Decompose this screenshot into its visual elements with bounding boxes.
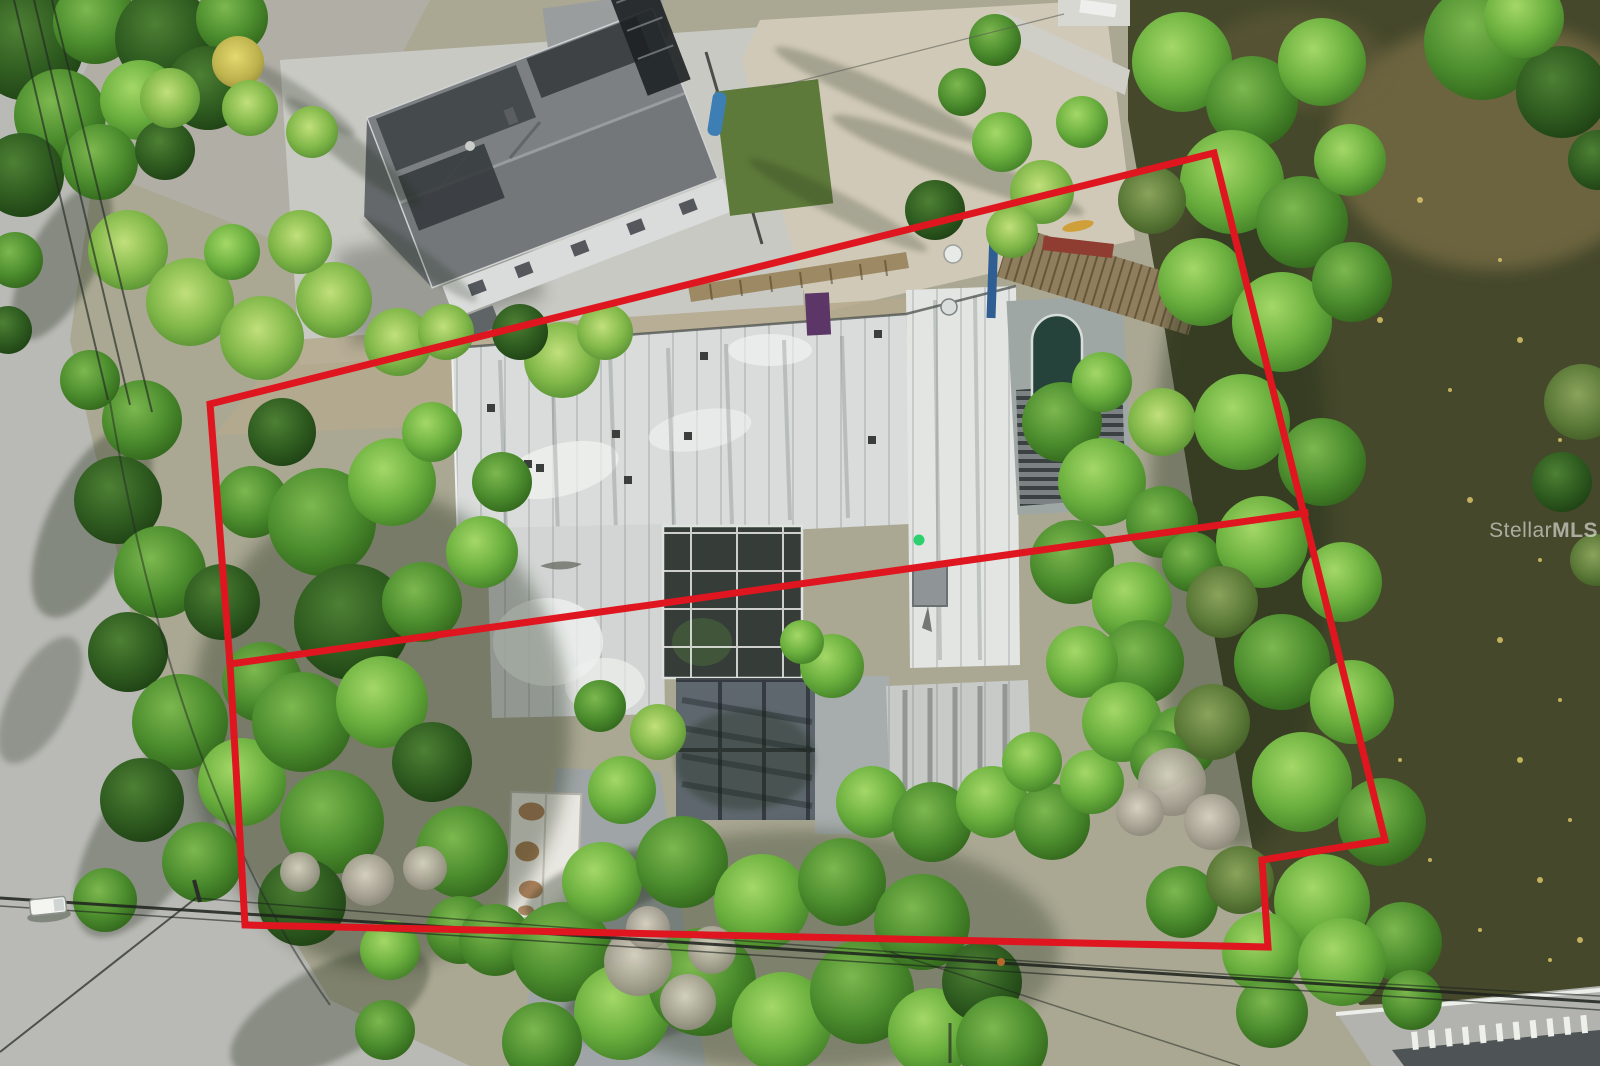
scene-shape xyxy=(612,430,620,438)
tree-canopy-blob xyxy=(938,68,986,116)
tree-canopy-blob xyxy=(1278,18,1366,106)
tree-canopy-blob xyxy=(296,262,372,338)
tree-canopy-blob xyxy=(574,680,626,732)
scene-shape xyxy=(700,352,708,360)
watermark-brand-first: Stellar xyxy=(1489,519,1552,542)
tree-canopy-blob xyxy=(392,722,472,802)
tree-canopy-blob xyxy=(636,816,728,908)
tree-canopy-blob xyxy=(1186,566,1258,638)
tree-canopy-blob xyxy=(355,1000,415,1060)
tree-canopy-blob xyxy=(986,206,1038,258)
white-dome-tank xyxy=(944,245,962,263)
tree-canopy-blob xyxy=(204,224,260,280)
water-debris-speck xyxy=(1428,858,1432,862)
tree-canopy-blob xyxy=(1314,124,1386,196)
dead-tree-blob xyxy=(660,974,716,1030)
tree-canopy-blob xyxy=(1382,970,1442,1030)
tree-canopy-blob xyxy=(1532,452,1592,512)
cable-transformer-dot xyxy=(997,958,1005,966)
tree-canopy-blob xyxy=(60,350,120,410)
roof-right-tall-seams xyxy=(906,286,1020,668)
aerial-photo: StellarMLS xyxy=(0,0,1600,1066)
water-debris-speck xyxy=(1398,758,1402,762)
dead-tree-blob xyxy=(626,906,670,950)
water-debris-speck xyxy=(1517,337,1523,343)
tree-canopy-blob xyxy=(972,112,1032,172)
tree-canopy-blob xyxy=(220,296,304,380)
stellar-mls-watermark: StellarMLS xyxy=(1489,519,1598,543)
truck-cab xyxy=(53,898,64,911)
tree-canopy-blob xyxy=(446,516,518,588)
tree-canopy-blob xyxy=(562,842,642,922)
tree-canopy-blob xyxy=(100,758,184,842)
water-debris-speck xyxy=(1497,637,1503,643)
water-debris-speck xyxy=(1568,818,1572,822)
tree-canopy-blob xyxy=(252,672,352,772)
tree-canopy-blob xyxy=(162,822,242,902)
scene-shape xyxy=(684,432,692,440)
dead-tree-blob xyxy=(280,852,320,892)
scene-shape xyxy=(874,330,882,338)
tree-canopy-blob xyxy=(1128,388,1196,456)
tree-canopy-blob xyxy=(402,402,462,462)
tree-canopy-blob xyxy=(588,756,656,824)
dead-tree-blob xyxy=(1116,788,1164,836)
water-debris-speck xyxy=(1548,958,1552,962)
tree-canopy-blob xyxy=(140,68,200,128)
green-marker-dot xyxy=(914,535,925,546)
scene-shape xyxy=(624,476,632,484)
water-debris-speck xyxy=(1538,558,1542,562)
dead-tree-blob xyxy=(1184,794,1240,850)
water-debris-speck xyxy=(1537,877,1543,883)
tree-canopy-blob xyxy=(969,14,1021,66)
water-debris-speck xyxy=(1498,258,1502,262)
purple-roof-patch xyxy=(805,292,831,335)
tree-canopy-blob xyxy=(135,120,195,180)
tree-canopy-blob xyxy=(212,36,264,88)
roof-white-patch xyxy=(728,334,812,366)
tree-canopy-blob xyxy=(1056,96,1108,148)
roof-vent xyxy=(465,141,475,151)
tree-canopy-blob xyxy=(73,868,137,932)
water-debris-speck xyxy=(1558,438,1562,442)
tree-canopy-blob xyxy=(248,398,316,466)
satellite-dish xyxy=(941,299,957,315)
tree-canopy-blob xyxy=(798,838,886,926)
water-debris-speck xyxy=(1517,757,1523,763)
watermark-brand-second: MLS xyxy=(1552,519,1598,542)
tree-canopy-blob xyxy=(472,452,532,512)
water-debris-speck xyxy=(1577,937,1583,943)
scene-shape xyxy=(675,710,815,810)
water-debris-speck xyxy=(1448,388,1452,392)
water-debris-speck xyxy=(1417,197,1423,203)
scene-canvas xyxy=(0,0,1600,1066)
tree-canopy-blob xyxy=(1312,242,1392,322)
tree-canopy-blob xyxy=(286,106,338,158)
tree-canopy-blob xyxy=(780,620,824,664)
dead-tree-blob xyxy=(403,846,447,890)
tree-canopy-blob xyxy=(630,704,686,760)
tree-canopy-blob xyxy=(222,80,278,136)
scene-shape xyxy=(868,436,876,444)
tree-canopy-blob xyxy=(1002,732,1062,792)
tree-canopy-blob xyxy=(1158,238,1246,326)
tree-canopy-blob xyxy=(1252,732,1352,832)
scene-shape xyxy=(536,464,544,472)
tree-canopy-blob xyxy=(88,612,168,692)
scene-shape xyxy=(487,404,495,412)
water-debris-speck xyxy=(1558,698,1562,702)
water-debris-speck xyxy=(1377,317,1383,323)
tree-canopy-blob xyxy=(268,210,332,274)
water-debris-speck xyxy=(1478,928,1482,932)
dead-tree-blob xyxy=(342,854,394,906)
tree-canopy-blob xyxy=(1072,352,1132,412)
rooftop-ac-unit xyxy=(913,566,947,606)
water-debris-speck xyxy=(1467,497,1473,503)
